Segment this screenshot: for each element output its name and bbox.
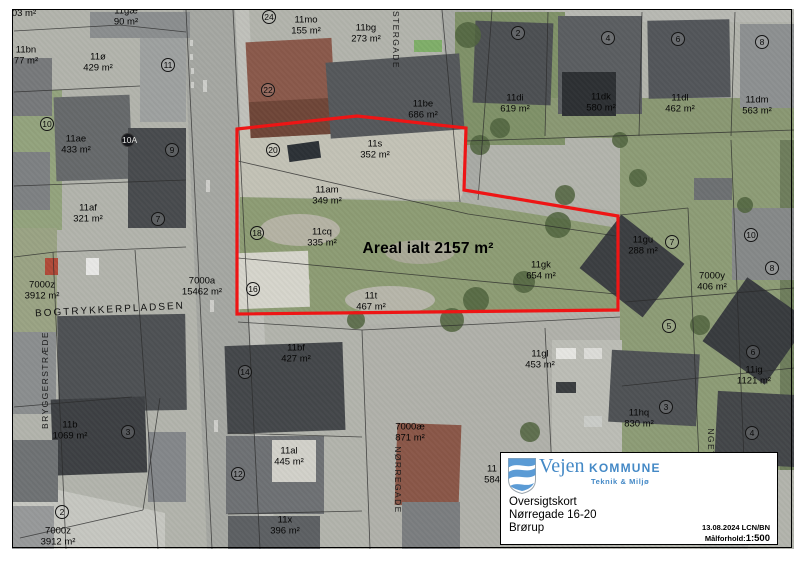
parcel-label: 11mo155 m² (291, 16, 321, 37)
parcel-area: 830 m² (624, 419, 654, 430)
logo-word-kommune: KOMMUNE (589, 461, 661, 475)
parcel-area: 453 m² (525, 360, 555, 371)
parcel-label: 03 m² (12, 9, 36, 20)
house-number-circle: 4 (745, 426, 759, 440)
house-number-circle: 11 (161, 58, 175, 72)
parcel-area: 467 m² (356, 302, 386, 313)
parcel-id: 7000a (182, 277, 222, 288)
parcel-area: 77 m² (14, 56, 38, 67)
vejen-kommune-shield-icon (507, 457, 537, 495)
parcel-id: 11am (312, 186, 342, 197)
parcel-area: 3912 m² (41, 537, 76, 548)
scale-label: Målforhold: (705, 534, 746, 543)
parcel-label: 11al445 m² (274, 447, 304, 468)
parcel-id: 11ig (737, 366, 771, 377)
map-date: 13.08.2024 LCN/BN (702, 523, 770, 532)
map-scale: Målforhold:1:500 (705, 533, 770, 544)
house-number-circle: 20 (266, 143, 280, 157)
parcel-label: 11gl453 m² (525, 350, 555, 371)
parcel-label: 7000y406 m² (697, 272, 727, 293)
parcel-area: 433 m² (61, 145, 91, 156)
parcel-area: 462 m² (665, 104, 695, 115)
house-number-circle: 8 (765, 261, 779, 275)
house-number-circle: 7 (665, 235, 679, 249)
total-area-label: Areal ialt 2157 m² (362, 240, 493, 258)
parcel-id: 11be (408, 100, 438, 111)
parcel-id: 7000z (25, 281, 60, 292)
house-number-circle: 3 (659, 400, 673, 414)
parcel-id: 7000y (697, 272, 727, 283)
parcel-id: 11mo (291, 16, 321, 27)
house-number-circle: 10 (744, 228, 758, 242)
parcel-id: 7000æ (395, 423, 425, 434)
house-number-circle: 6 (671, 32, 685, 46)
parcel-area: 321 m² (73, 214, 103, 225)
parcel-area: 1121 m² (737, 376, 771, 387)
parcel-area: 445 m² (274, 457, 304, 468)
parcel-id: 11af (73, 204, 103, 215)
parcel-label: 11af321 m² (73, 204, 103, 225)
parcel-id: 11x (270, 516, 300, 527)
logo-word-vejen: Vejen (539, 455, 585, 477)
street-label: ØSTERGADE (391, 3, 401, 69)
parcel-label: 11cq335 m² (307, 228, 337, 249)
parcel-id: 11gk (526, 261, 556, 272)
parcel-area: 871 m² (395, 433, 425, 444)
parcel-label: 11gu288 m² (628, 236, 658, 257)
house-number-circle: 12 (231, 467, 245, 481)
parcel-label: 11gæ90 m² (114, 7, 138, 28)
street-label: BOGTRYKKERPLADSEN (35, 301, 185, 320)
parcel-label: 11gk654 m² (526, 261, 556, 282)
parcel-area: 03 m² (12, 9, 36, 20)
parcel-label: 11584 (484, 465, 500, 486)
map-address: Nørregade 16-20 (509, 509, 597, 521)
parcel-area: 619 m² (500, 104, 530, 115)
parcel-area: 406 m² (697, 282, 727, 293)
parcel-label: 11be686 m² (408, 100, 438, 121)
parcel-label: 11di619 m² (500, 94, 530, 115)
parcel-label: 11bn77 m² (14, 46, 38, 67)
parcel-area: 686 m² (408, 110, 438, 121)
page-margin-top (0, 0, 800, 9)
parcel-id: 11bn (14, 46, 38, 57)
parcel-area: 3912 m² (25, 291, 60, 302)
parcel-id: 11di (500, 94, 530, 105)
parcel-area: 429 m² (83, 63, 113, 74)
page-margin-right (794, 0, 800, 566)
house-number-circle: 9 (165, 143, 179, 157)
parcel-area: 15462 m² (182, 287, 222, 298)
map-city: Brørup (509, 522, 544, 534)
parcel-area: 563 m² (742, 106, 772, 117)
parcel-label: 11hq830 m² (624, 409, 654, 430)
house-number-circle: 10A (121, 133, 135, 147)
house-number-circle: 14 (238, 365, 252, 379)
map-info-box: Vejen KOMMUNE Teknik & Miljø Oversigtsko… (500, 452, 778, 545)
house-number-circle: 2 (511, 26, 525, 40)
parcel-id: 11b (53, 421, 88, 432)
parcel-label: 11bf427 m² (281, 344, 311, 365)
house-number-circle: 4 (601, 31, 615, 45)
parcel-id: 11s (360, 140, 390, 151)
parcel-area: 288 m² (628, 246, 658, 257)
parcel-label: 11dk580 m² (586, 93, 616, 114)
parcel-id: 11gu (628, 236, 658, 247)
parcel-area: 349 m² (312, 196, 342, 207)
map-title: Oversigtskort (509, 496, 577, 508)
parcel-label: 11b1069 m² (53, 421, 88, 442)
parcel-area: 90 m² (114, 17, 138, 28)
page-margin-left (0, 0, 12, 566)
street-label: NØRREGADE (393, 446, 403, 513)
parcel-label: 11x396 m² (270, 516, 300, 537)
parcel-label: 11bg273 m² (351, 24, 381, 45)
parcel-label: 7000z3912 m² (41, 527, 76, 548)
scale-value: 1:500 (746, 533, 770, 544)
parcel-id: 11dk (586, 93, 616, 104)
parcel-area: 352 m² (360, 150, 390, 161)
parcel-id: 11al (274, 447, 304, 458)
parcel-label: 11t467 m² (356, 292, 386, 313)
parcel-label: 11ig1121 m² (737, 366, 771, 387)
house-number-circle: 16 (246, 282, 260, 296)
parcel-area: 1069 m² (53, 431, 88, 442)
logo-subtitle: Teknik & Miljø (591, 477, 649, 486)
house-number-circle: 24 (262, 10, 276, 24)
house-number-circle: 2 (55, 505, 69, 519)
parcel-label: 7000a15462 m² (182, 277, 222, 298)
parcel-label: 11dm563 m² (742, 96, 772, 117)
parcel-label: 7000z3912 m² (25, 281, 60, 302)
parcel-area: 580 m² (586, 103, 616, 114)
house-number-circle: 3 (121, 425, 135, 439)
parcel-id: 11dl (665, 94, 695, 105)
parcel-area: 155 m² (291, 26, 321, 37)
house-number-circle: 8 (755, 35, 769, 49)
house-number-circle: 7 (151, 212, 165, 226)
parcel-area: 273 m² (351, 34, 381, 45)
parcel-id: 11 (484, 465, 500, 476)
parcel-id: 11dm (742, 96, 772, 107)
page-margin-bottom (0, 549, 800, 566)
parcel-area: 396 m² (270, 526, 300, 537)
parcel-label: 11ø429 m² (83, 53, 113, 74)
street-label: BRYGGERSTRÆDE (40, 331, 50, 429)
parcel-label: 11ae433 m² (61, 135, 91, 156)
parcel-area: 584 (484, 475, 500, 486)
parcel-id: 11ae (61, 135, 91, 146)
parcel-id: 11bf (281, 344, 311, 355)
house-number-circle: 22 (261, 83, 275, 97)
parcel-id: 11gl (525, 350, 555, 361)
parcel-label: 11s352 m² (360, 140, 390, 161)
parcel-area: 427 m² (281, 354, 311, 365)
house-number-circle: 10 (40, 117, 54, 131)
parcel-id: 11cq (307, 228, 337, 239)
parcel-id: 11bg (351, 24, 381, 35)
parcel-area: 335 m² (307, 238, 337, 249)
parcel-id: 11t (356, 292, 386, 303)
parcel-id: 11ø (83, 53, 113, 64)
parcel-id: 7000z (41, 527, 76, 538)
parcel-label: 11dl462 m² (665, 94, 695, 115)
house-number-circle: 18 (250, 226, 264, 240)
house-number-circle: 6 (746, 345, 760, 359)
oversigtskort-page: Areal ialt 2157 m² 03 m²11gæ90 m²11bn77 … (0, 0, 800, 566)
house-number-circle: 5 (662, 319, 676, 333)
parcel-area: 654 m² (526, 271, 556, 282)
parcel-id: 11hq (624, 409, 654, 420)
parcel-label: 7000æ871 m² (395, 423, 425, 444)
parcel-label: 11am349 m² (312, 186, 342, 207)
kommune-logo: Vejen KOMMUNE (539, 455, 661, 478)
